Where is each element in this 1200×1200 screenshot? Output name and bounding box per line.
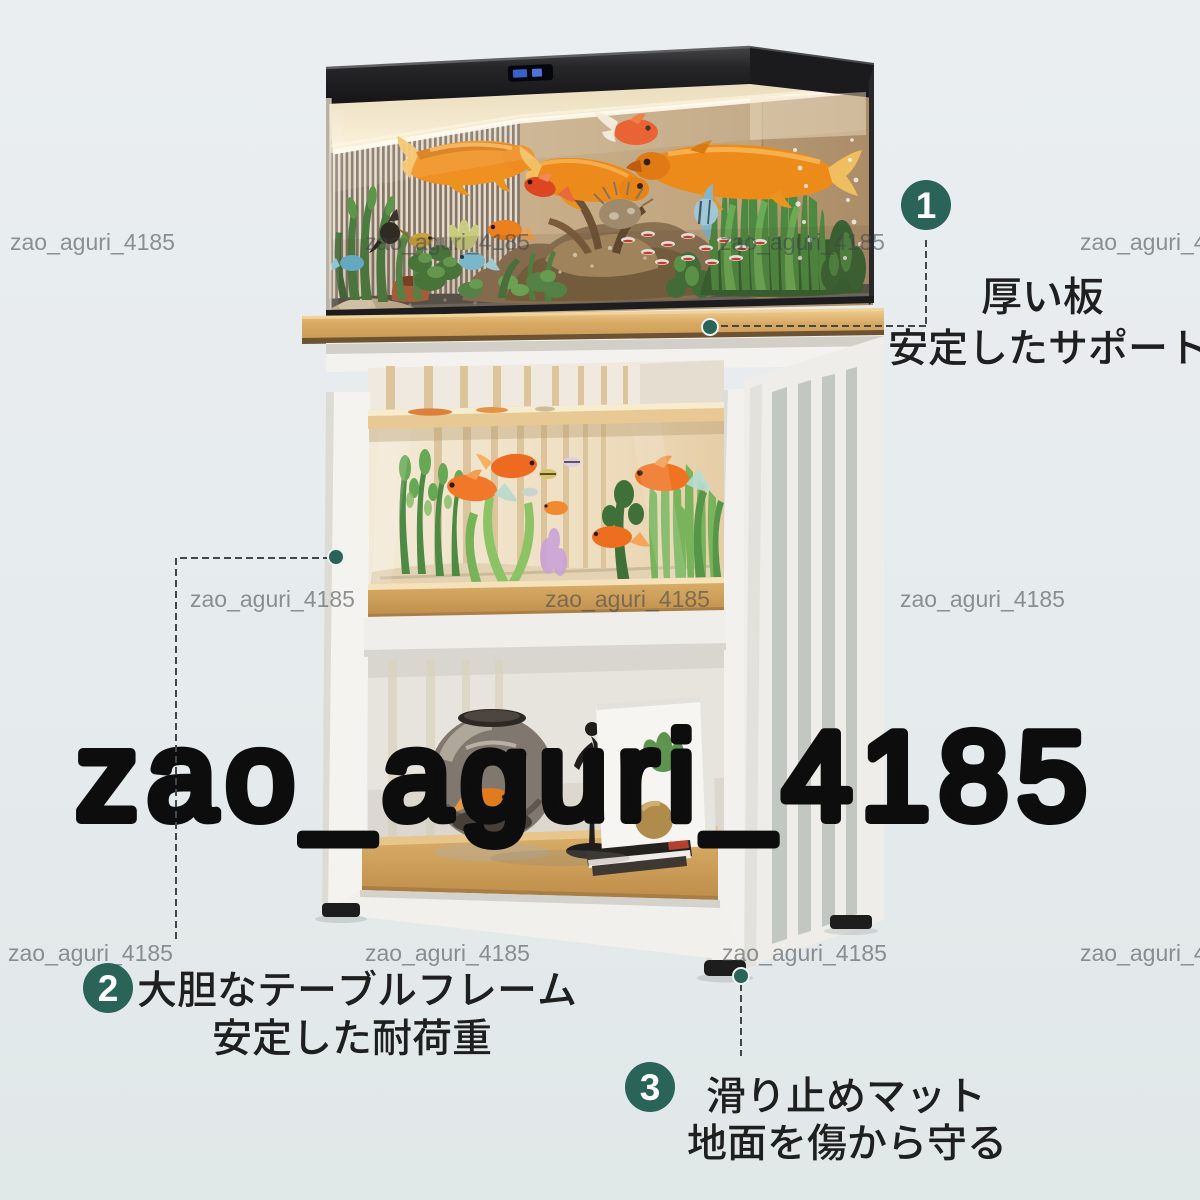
svg-text:2: 2 [98,968,119,1009]
svg-text:zao_aguri_4185: zao_aguri_4185 [365,229,530,255]
svg-text:zao_aguri_4185: zao_aguri_4185 [1080,940,1200,966]
svg-text:zao_aguri_4185: zao_aguri_4185 [365,940,530,966]
svg-text:zao_aguri_4185: zao_aguri_4185 [190,586,355,612]
svg-text:zao_aguri_4185: zao_aguri_4185 [545,586,710,612]
svg-text:zao_aguri_4185: zao_aguri_4185 [10,229,175,255]
svg-text:zao_aguri_4185: zao_aguri_4185 [8,940,173,966]
svg-text:zao_aguri_4185: zao_aguri_4185 [720,229,885,255]
svg-text:zao_aguri_4185: zao_aguri_4185 [76,708,1096,846]
svg-text:zao_aguri_4185: zao_aguri_4185 [722,940,887,966]
svg-text:zao_aguri_4185: zao_aguri_4185 [1080,229,1200,255]
svg-text:1: 1 [916,185,937,226]
svg-text:3: 3 [640,1067,661,1108]
svg-text:zao_aguri_4185: zao_aguri_4185 [900,586,1065,612]
